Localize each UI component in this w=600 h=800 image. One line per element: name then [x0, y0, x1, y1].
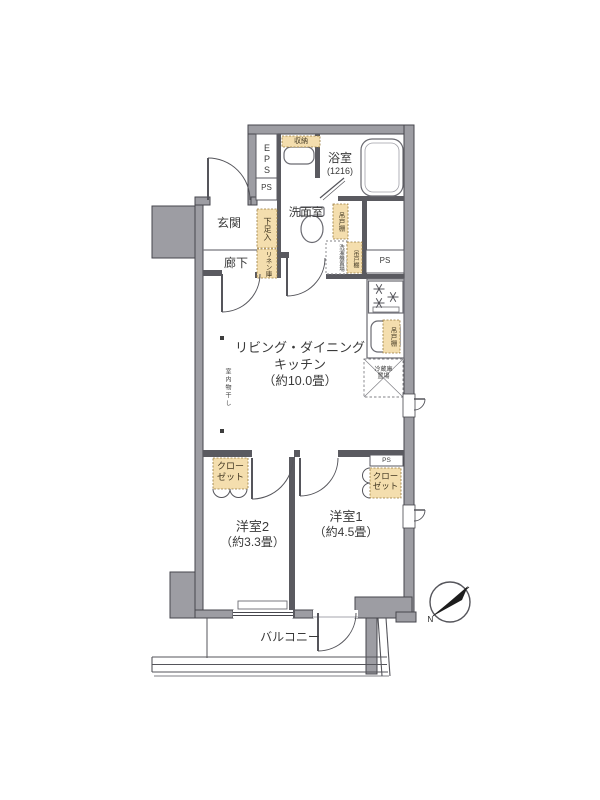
closet-bedroom1-label: クローゼット: [371, 471, 400, 491]
bedroom1-label: 洋室1 （約4.5畳）: [302, 509, 390, 540]
bathroom-name: 浴室: [328, 151, 352, 165]
washroom-door: [287, 258, 325, 296]
vanity-sink: [284, 147, 314, 164]
bathroom-label: 浴室 (1216): [316, 152, 364, 178]
compass: N: [428, 582, 471, 624]
wall-hatch-upper: [403, 394, 425, 417]
bedroom1-door: [300, 458, 338, 496]
fridge-line2: 置場: [377, 374, 389, 380]
floorplan-page: N EPS PS 収納 浴室 (1216) 洗面室 玄関 下足入 廊下 リネン庫…: [0, 0, 600, 800]
bedroom2-label: 洋室2 （約3.3畳）: [210, 519, 295, 550]
bedroom2-window-gap: [233, 610, 293, 618]
ps-label-bottom: PS: [370, 456, 403, 466]
bathroom-size: (1216): [316, 165, 364, 178]
wall-protrusion-upper: [152, 206, 195, 258]
balcony-pillar: [366, 618, 377, 674]
shoe-cupboard-label: 下足入: [257, 212, 277, 246]
hanging-cupboard-toilet-label: 吊戸棚: [333, 207, 348, 237]
indoor-drying-label: 室内物干し: [222, 352, 231, 424]
ps-label-top: PS: [256, 183, 277, 192]
closet-bedroom2-label: クローゼット: [214, 461, 247, 482]
hanging-cupboard-laundry-label: 吊戸棚: [348, 245, 362, 272]
bathtub: [361, 139, 403, 196]
floorplan-svg: N: [0, 0, 600, 800]
balcony-label: バルコニー: [250, 628, 330, 645]
eps-label: EPS: [257, 139, 277, 179]
bedroom2-window-frame: [238, 601, 287, 609]
hanging-cupboard-kitchen-label: 吊戸棚: [384, 323, 400, 351]
stove-grill: [373, 307, 399, 312]
entrance-label: 玄関: [212, 214, 246, 231]
wall-bottom-b: [293, 610, 313, 618]
washroom-label: 洗面室: [282, 204, 330, 220]
bedroom1-name: 洋室1: [329, 509, 362, 524]
hallway-door: [222, 274, 260, 312]
storage-shelf-label: 収納: [282, 137, 320, 146]
ldk-line2: キッチン: [274, 357, 326, 372]
bedroom2-name: 洋室2: [236, 519, 269, 534]
wall-right: [404, 125, 414, 618]
ps-label-mid: PS: [366, 256, 404, 265]
entrance-door: [208, 158, 250, 200]
wall-top: [248, 125, 414, 134]
balcony-railing: [152, 618, 390, 676]
wall-hatch-lower: [403, 505, 425, 528]
bedroom2-door: [252, 458, 293, 499]
bedroom2-size: （約3.3畳）: [220, 535, 285, 549]
wall-bottom-a: [195, 610, 233, 618]
wall-protrusion-lower: [170, 572, 195, 618]
wall-bottom-right-step: [396, 612, 416, 622]
washer-space-label: 洗濯機置場: [336, 243, 345, 273]
hallway-label: 廊下: [220, 254, 252, 271]
ldk-label: リビング・ダイニング キッチン （約10.0畳）: [230, 340, 370, 390]
closet-bedroom2-folding-door: [213, 489, 247, 498]
wall-left: [195, 205, 203, 618]
ldk-size: （約10.0畳）: [263, 374, 337, 388]
fridge-line1: 冷蔵庫: [374, 367, 392, 373]
compass-north-label: N: [428, 615, 434, 624]
bedroom1-size: （約4.5畳）: [314, 525, 379, 539]
closet-bedroom1-folding-door: [363, 468, 370, 498]
ldk-line1: リビング・ダイニング: [235, 340, 365, 355]
linen-cabinet-label: リネン庫: [257, 250, 277, 278]
